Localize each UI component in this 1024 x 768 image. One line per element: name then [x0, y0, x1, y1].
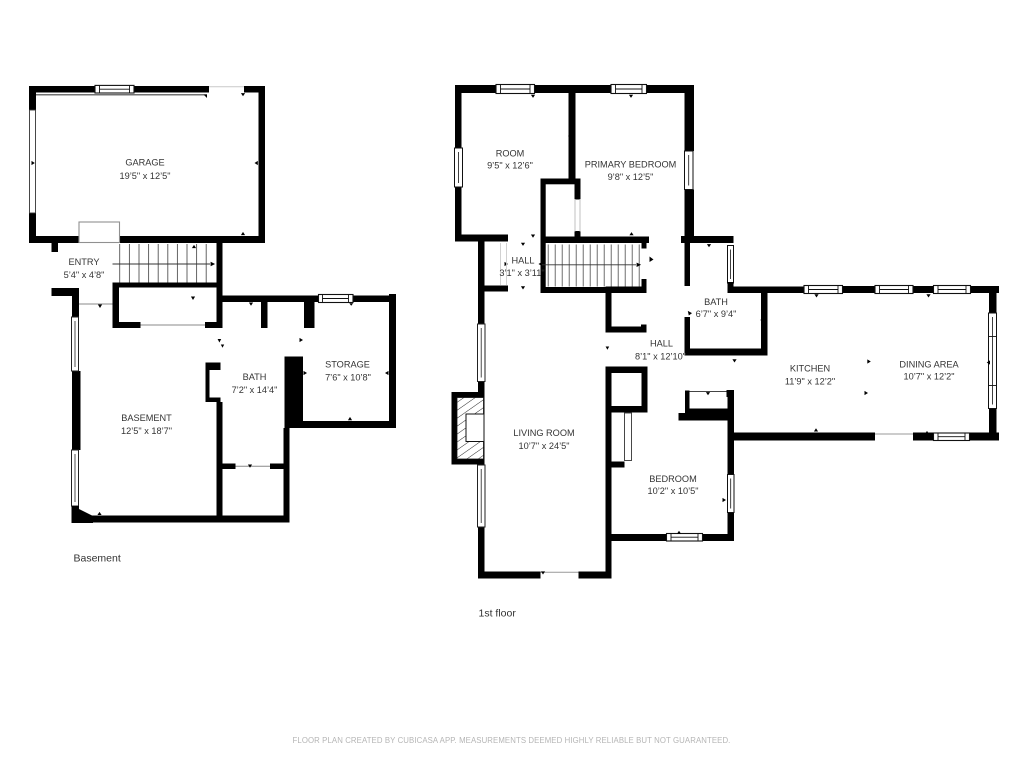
- svg-text:1st floor: 1st floor: [479, 607, 517, 619]
- svg-text:ROOM: ROOM: [496, 148, 525, 158]
- svg-text:BEDROOM: BEDROOM: [649, 474, 696, 484]
- svg-text:10’7" x 12’2": 10’7" x 12’2": [904, 372, 955, 382]
- svg-text:BATH: BATH: [704, 297, 728, 307]
- svg-text:10’7" x 24’5": 10’7" x 24’5": [519, 441, 570, 451]
- svg-text:GARAGE: GARAGE: [125, 158, 164, 168]
- svg-text:8’1" x 12’10": 8’1" x 12’10": [635, 351, 686, 361]
- svg-text:FLOOR PLAN CREATED BY CUBICASA: FLOOR PLAN CREATED BY CUBICASA APP. MEAS…: [293, 736, 731, 745]
- svg-text:KITCHEN: KITCHEN: [790, 364, 830, 374]
- svg-text:19’5" x 12’5": 19’5" x 12’5": [120, 171, 171, 181]
- svg-text:10’2" x 10’5": 10’2" x 10’5": [648, 486, 699, 496]
- svg-text:9’8" x 12’5": 9’8" x 12’5": [608, 172, 654, 182]
- svg-text:12’5" x 18’7": 12’5" x 18’7": [121, 426, 172, 436]
- svg-text:HALL: HALL: [512, 256, 535, 266]
- svg-text:7’6" x 10’8": 7’6" x 10’8": [325, 372, 371, 382]
- svg-text:BATH: BATH: [243, 372, 267, 382]
- svg-text:PRIMARY BEDROOM: PRIMARY BEDROOM: [585, 160, 677, 170]
- svg-text:7’2" x 14’4": 7’2" x 14’4": [232, 385, 278, 395]
- svg-text:STORAGE: STORAGE: [325, 360, 370, 370]
- svg-text:Basement: Basement: [74, 553, 121, 565]
- svg-text:6’7" x 9’4": 6’7" x 9’4": [696, 309, 737, 319]
- svg-text:HALL: HALL: [650, 339, 673, 349]
- svg-text:5’4" x 4’8": 5’4" x 4’8": [64, 270, 105, 280]
- svg-text:DINING AREA: DINING AREA: [899, 360, 959, 370]
- svg-text:LIVING ROOM: LIVING ROOM: [513, 428, 574, 438]
- svg-text:9’5" x 12’6": 9’5" x 12’6": [487, 160, 533, 170]
- svg-text:BASEMENT: BASEMENT: [121, 413, 172, 423]
- svg-text:3’1" x 3’11": 3’1" x 3’11": [499, 268, 544, 278]
- svg-text:ENTRY: ENTRY: [69, 257, 100, 267]
- svg-text:11’9" x 12’2": 11’9" x 12’2": [785, 376, 835, 386]
